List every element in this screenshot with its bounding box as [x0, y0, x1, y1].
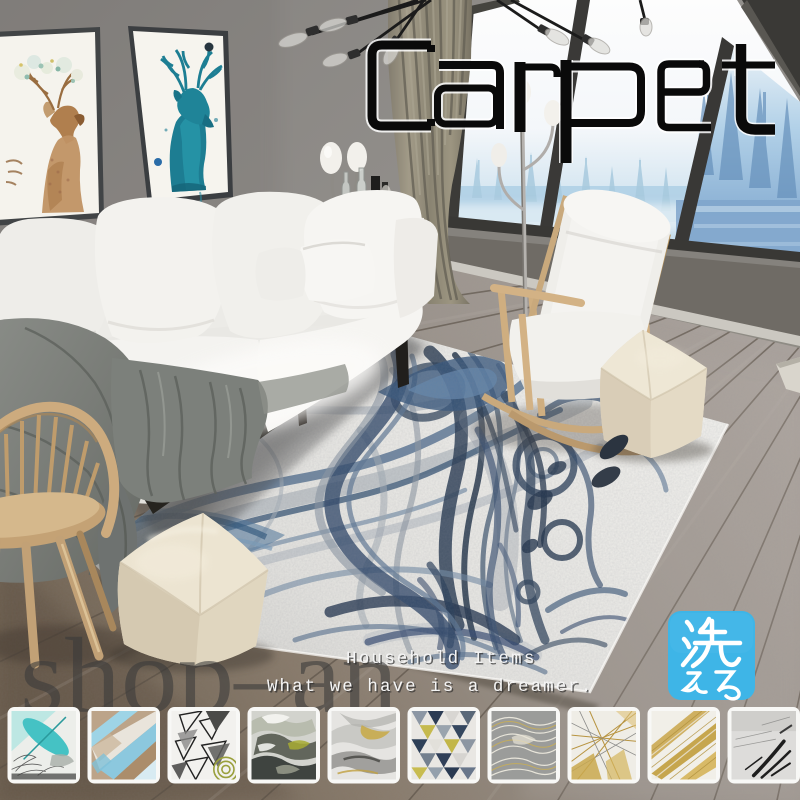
svg-text:What we have is a dreamer.: What we have is a dreamer. [267, 677, 593, 697]
svg-text:Household Items: Household Items [346, 649, 537, 669]
